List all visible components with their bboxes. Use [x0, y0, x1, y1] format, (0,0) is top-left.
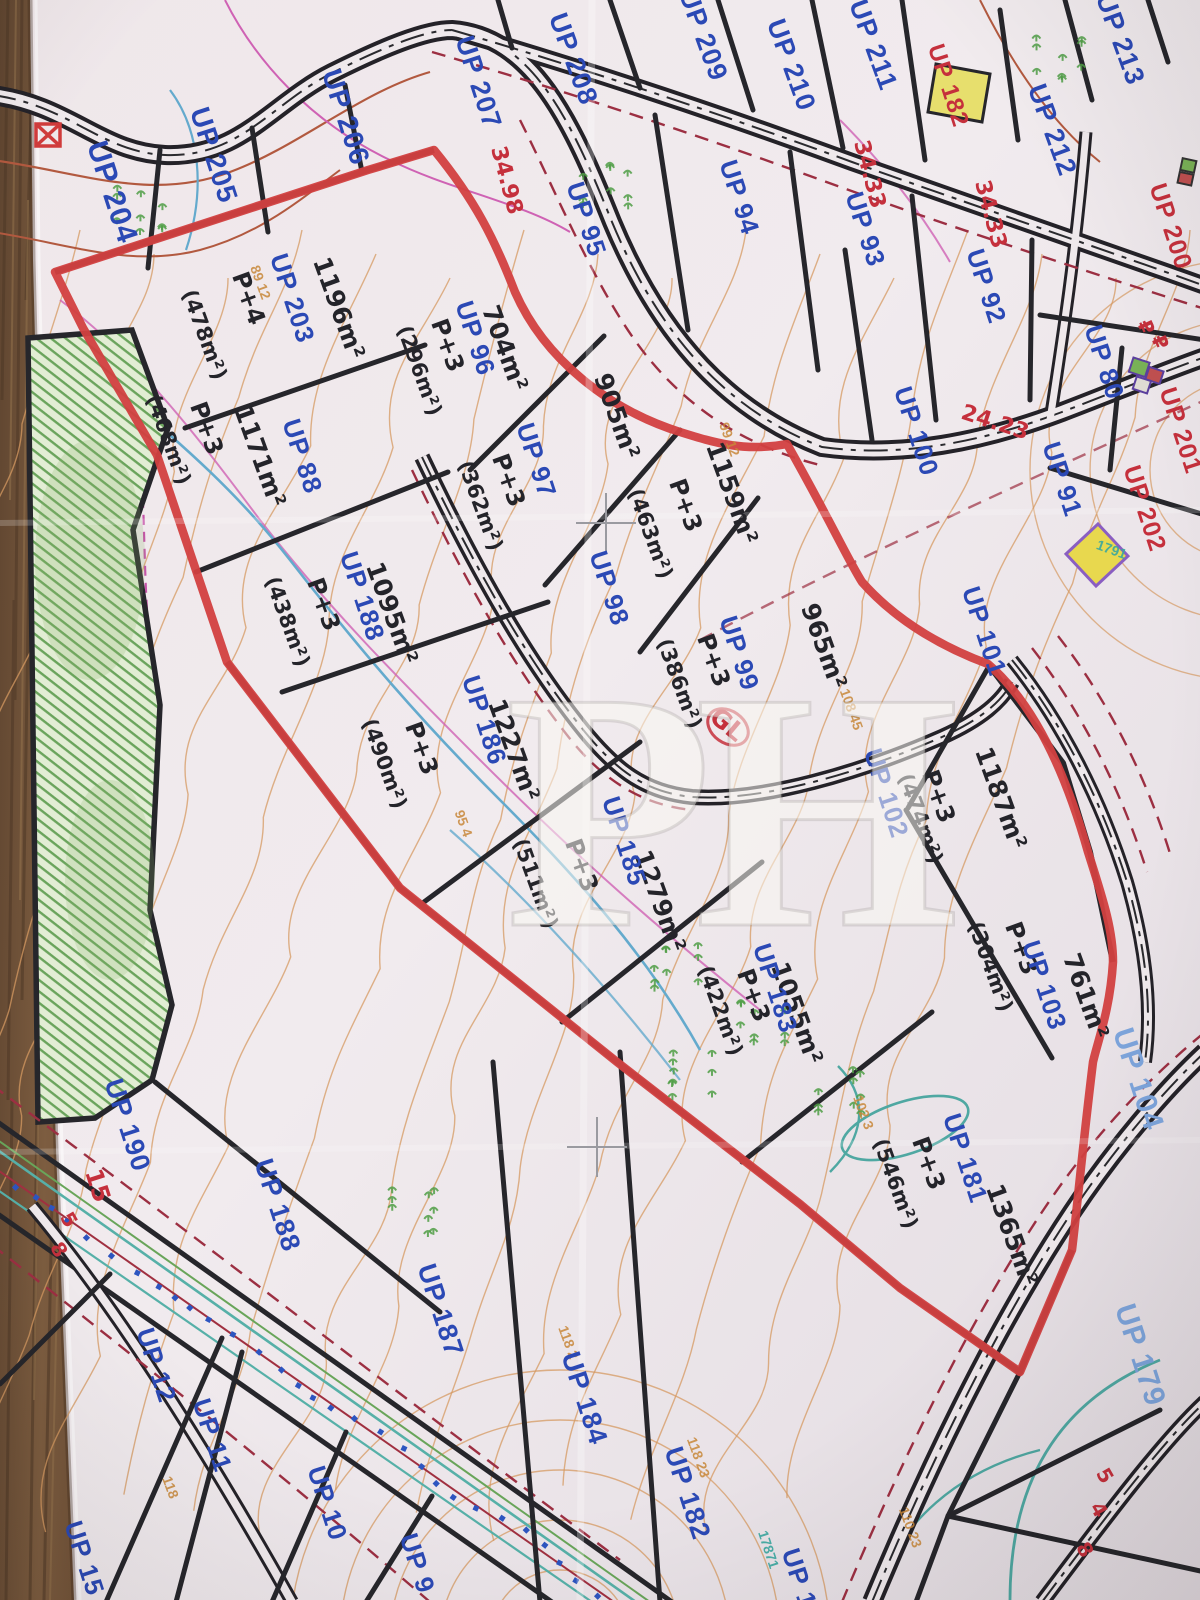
cadastral-map-photo: 108 4599 1289 1295 4102 3118 2118 23110 … — [0, 0, 1200, 1600]
photo-vignette — [0, 0, 1200, 1600]
